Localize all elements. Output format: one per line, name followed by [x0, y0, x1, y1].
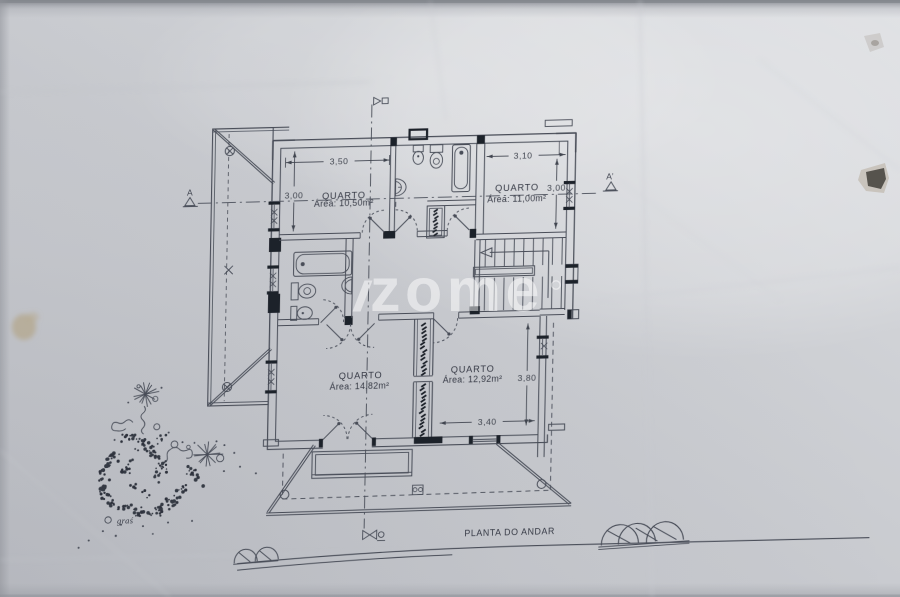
svg-text:3,50: 3,50 — [330, 156, 349, 166]
svg-text:3,40: 3,40 — [478, 417, 497, 427]
svg-text:3,80: 3,80 — [518, 373, 537, 383]
svg-text:Área: 11,00m²: Área: 11,00m² — [487, 193, 546, 204]
svg-text:A’: A’ — [606, 171, 614, 181]
svg-text:3,10: 3,10 — [514, 150, 533, 160]
svg-text:3,00: 3,00 — [547, 183, 566, 193]
svg-text:Área: 14,82m²: Área: 14,82m² — [330, 380, 390, 392]
svg-text:QUARTO: QUARTO — [495, 182, 539, 193]
svg-text:Área: 10,50m²: Área: 10,50m² — [314, 197, 374, 209]
svg-text:zome: zome — [370, 256, 544, 324]
svg-text:Área: 12,92m²: Área: 12,92m² — [443, 374, 503, 386]
svg-text:3,00: 3,00 — [285, 190, 304, 200]
svg-text:QUARTO: QUARTO — [339, 370, 383, 381]
svg-text:graś: graś — [117, 515, 134, 525]
svg-text:A: A — [187, 188, 193, 198]
